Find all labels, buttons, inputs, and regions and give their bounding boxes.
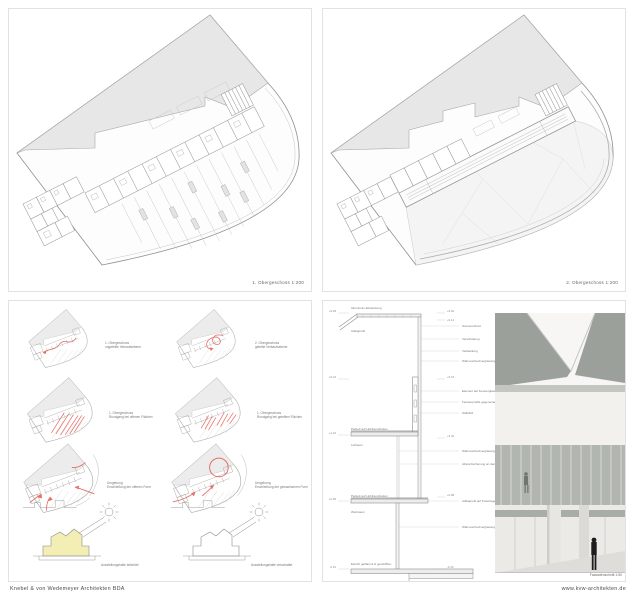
diagram-4-caption: 1. ObergeschossRundgang bei geteilten Fl…: [257, 411, 319, 420]
diagram-3-caption: 1. ObergeschossRundgang bei offenen Fläc…: [109, 411, 171, 420]
svg-text:Luftraum: Luftraum: [351, 443, 363, 447]
diagram-1-plan: [29, 309, 87, 367]
panel-concept-diagrams: 1. Obergeschossungeteilte Verkaufsebene …: [8, 300, 312, 582]
svg-text:+9.62: +9.62: [447, 309, 455, 313]
svg-text:-0.16: -0.16: [330, 565, 337, 569]
section-caption: Fassadenschnitt 1:50: [590, 573, 622, 577]
svg-text:Stahlfuß: Stahlfuß: [462, 411, 473, 415]
section-levels-right: +9.62 +9.14 +5.16 +3.42 +0.98 -0.16: [447, 309, 455, 569]
section-levels-left: +9.48 +5.16 +4.22 +0.95 -0.16: [329, 309, 337, 569]
diagram-5-caption: UmgebungErschließung der offenen Form: [107, 481, 169, 490]
svg-text:Aluminium-Eindeckung: Aluminium-Eindeckung: [351, 306, 382, 310]
svg-text:Attikaprofil: Attikaprofil: [351, 329, 365, 333]
svg-text:Attikaprofil auf Futterlage: Attikaprofil auf Futterlage: [462, 499, 496, 503]
svg-text:-0.16: -0.16: [447, 565, 454, 569]
svg-text:+9.48: +9.48: [329, 309, 337, 313]
svg-text:Werkraum: Werkraum: [351, 510, 365, 514]
svg-text:+9.14: +9.14: [447, 318, 455, 322]
render-fascia: [495, 385, 625, 392]
svg-text:+4.22: +4.22: [329, 431, 337, 435]
presentation-board: 1. Obergeschoss 1:200: [0, 0, 634, 600]
panel-facade-section: +9.48 +5.16 +4.22 +0.95 -0.16 +9.62 +9.1…: [322, 300, 626, 582]
svg-text:+3.42: +3.42: [447, 434, 455, 438]
facade-section-drawing: +9.48 +5.16 +4.22 +0.95 -0.16 +9.62 +9.1…: [325, 301, 503, 581]
panel-floor-plan-1: 1. Obergeschoss 1:200: [8, 8, 312, 292]
floor-plan-1-drawing: [9, 9, 313, 293]
diagram-6-caption: UmgebungErschließung der gewachsenen For…: [255, 481, 317, 490]
svg-text:+5.16: +5.16: [329, 375, 337, 379]
svg-text:Estrich geflämmt & geschliffen: Estrich geflämmt & geschliffen: [351, 562, 392, 566]
diagram-8-caption: Ausstellungshalle verschattet: [251, 563, 313, 567]
svg-text:+0.98: +0.98: [447, 493, 455, 497]
diagram-5-site: [23, 444, 99, 513]
diagram-2-plan: [177, 309, 235, 367]
svg-text:Sonnenschutz: Sonnenschutz: [462, 324, 482, 328]
plan2-caption: 2. Obergeschoss 1:200: [566, 280, 618, 285]
svg-text:+0.95: +0.95: [329, 497, 337, 501]
svg-text:Verschattung: Verschattung: [462, 337, 480, 341]
floor-plan-2-drawing: [323, 9, 627, 293]
footer-website: www.kvw-architekten.de: [562, 586, 626, 592]
svg-text:Parkett auf Hohlraumboden: Parkett auf Hohlraumboden: [351, 494, 388, 498]
diagram-2-caption: 2. Obergeschossgeteilte Verkaufsebene: [255, 341, 317, 350]
diagram-7-caption: Ausstellungshalle belichtet: [101, 563, 163, 567]
interior-rendering: [495, 313, 625, 573]
render-glazing-band: [495, 445, 625, 505]
diagram-6-site: [171, 444, 247, 513]
diagram-1-caption: 1. Obergeschossungeteilte Verkaufsebene: [105, 341, 167, 350]
render-plaster-band: [495, 392, 625, 445]
section-structure: [339, 314, 473, 581]
diagram-3-plan: [27, 378, 92, 442]
footer-firm-name: Knebel & von Wedemeyer Architekten BDA: [10, 586, 125, 592]
plan1-caption: 1. Obergeschoss 1:200: [252, 280, 304, 285]
svg-text:Parkett auf Hohlraumboden: Parkett auf Hohlraumboden: [351, 427, 388, 431]
diagram-4-plan: [175, 378, 240, 442]
svg-text:+5.16: +5.16: [447, 375, 455, 379]
panel-floor-plan-2: 2. Obergeschoss 1:200: [322, 8, 626, 292]
svg-text:Verkleidung: Verkleidung: [462, 349, 478, 353]
